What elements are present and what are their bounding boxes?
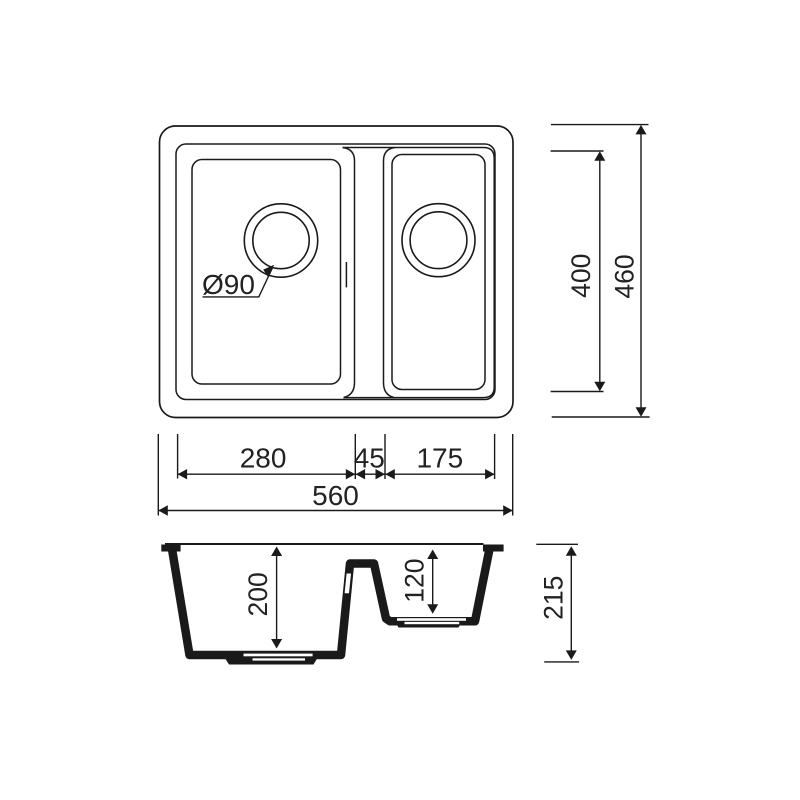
svg-text:120: 120 [400,558,430,602]
svg-text:280: 280 [240,443,287,474]
svg-text:200: 200 [243,572,273,616]
svg-text:460: 460 [610,254,640,298]
svg-text:175: 175 [416,443,463,474]
svg-text:Ø90: Ø90 [202,269,255,300]
svg-text:560: 560 [312,480,359,511]
svg-text:400: 400 [566,254,596,298]
svg-text:215: 215 [538,576,568,620]
svg-text:45: 45 [354,443,385,474]
